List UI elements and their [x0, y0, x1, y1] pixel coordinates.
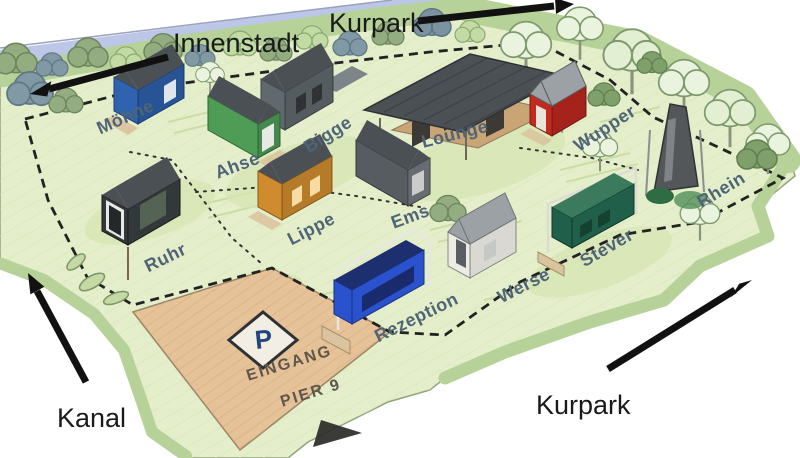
label-kurpark-bottom: Kurpark — [536, 391, 631, 421]
label-innenstadt: Innenstadt — [173, 29, 299, 59]
label-kurpark-top: Kurpark — [329, 9, 424, 39]
map-canvas: Innenstadt Kurpark Kurpark Kanal Möhne R… — [0, 0, 800, 458]
parking-p-sign-letter: P — [254, 324, 274, 354]
label-kanal: Kanal — [57, 404, 126, 434]
